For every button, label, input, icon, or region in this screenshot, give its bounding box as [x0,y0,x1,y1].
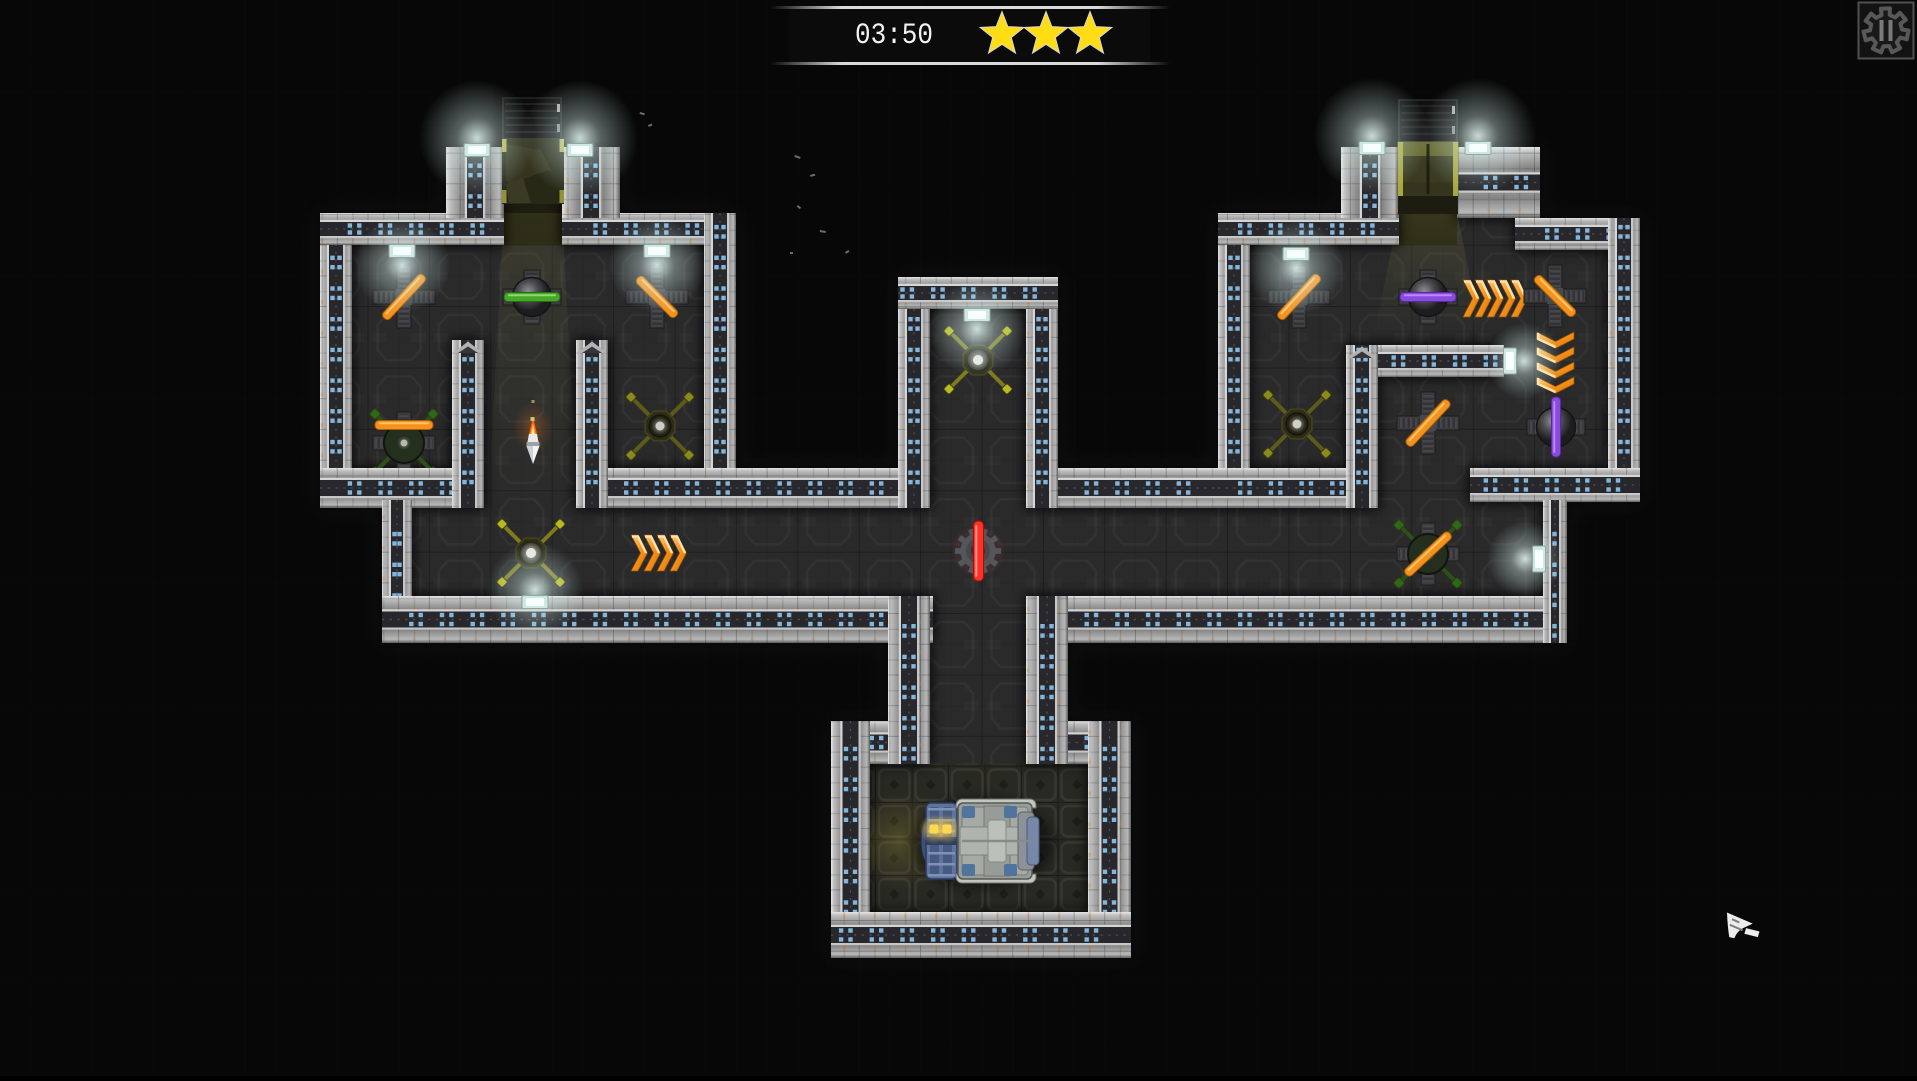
svg-text:03:50: 03:50 [855,19,933,53]
